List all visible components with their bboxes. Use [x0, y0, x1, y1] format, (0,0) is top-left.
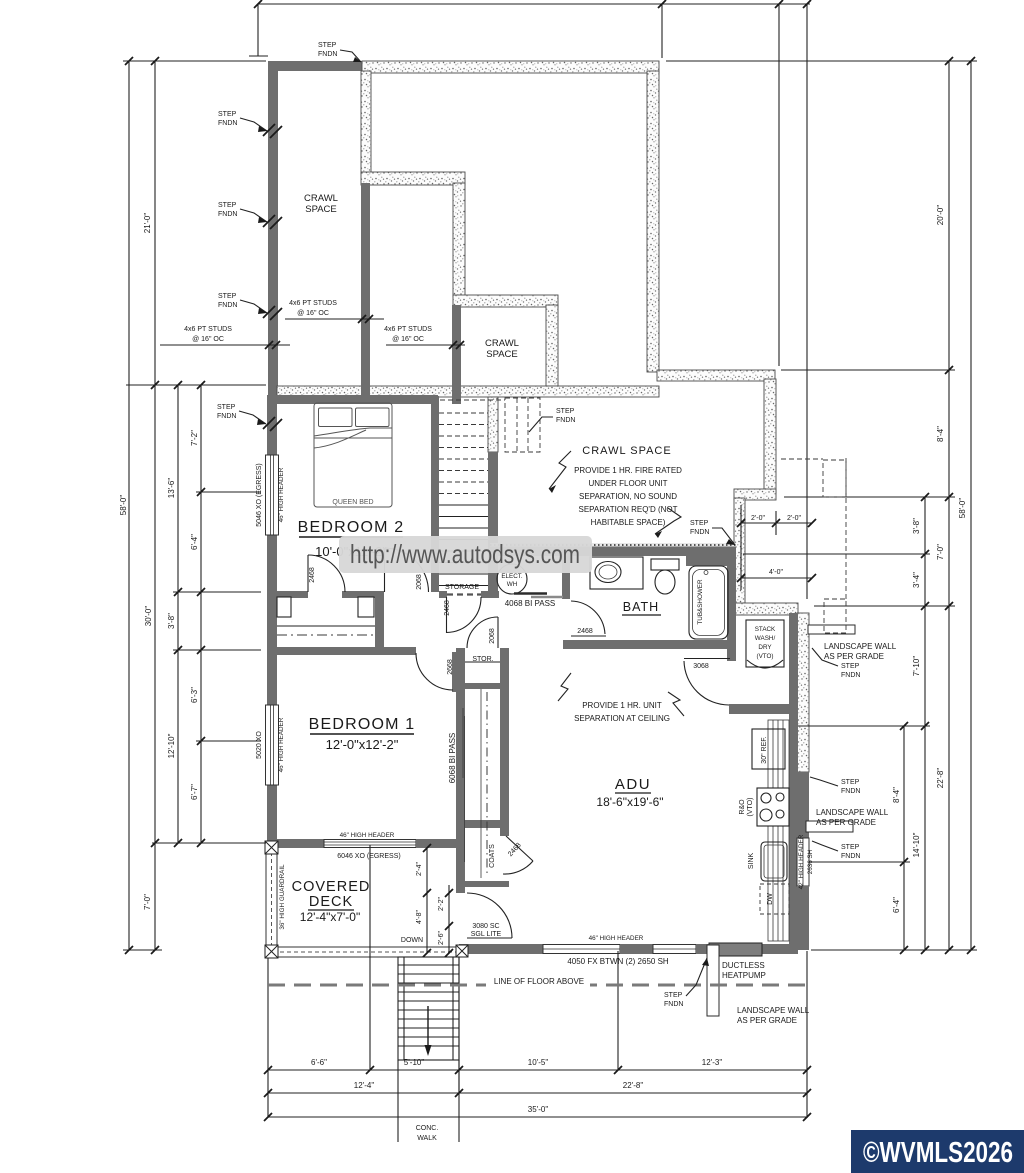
- svg-text:AS PER GRADE: AS PER GRADE: [816, 818, 876, 827]
- svg-text:2'-6": 2'-6": [438, 931, 445, 945]
- svg-text:18'-6"x19'-6": 18'-6"x19'-6": [596, 795, 663, 809]
- svg-text:SEPARATION AT CEILING: SEPARATION AT CEILING: [574, 714, 670, 723]
- svg-text:4068 BI PASS: 4068 BI PASS: [505, 599, 556, 608]
- svg-text:HEATPUMP: HEATPUMP: [722, 971, 766, 980]
- svg-text:2468: 2468: [577, 628, 593, 635]
- svg-text:FNDN: FNDN: [841, 853, 860, 860]
- svg-text:22'-8": 22'-8": [623, 1081, 644, 1090]
- svg-text:5046 XO (EGRESS): 5046 XO (EGRESS): [256, 463, 263, 526]
- svg-text:http://www.autodsys.com: http://www.autodsys.com: [350, 539, 580, 569]
- svg-text:LANDSCAPE WALL: LANDSCAPE WALL: [824, 642, 897, 651]
- svg-text:2'-2": 2'-2": [438, 897, 445, 911]
- svg-text:STEP: STEP: [841, 844, 860, 851]
- svg-text:DOWN: DOWN: [401, 937, 423, 944]
- svg-text:6'-3": 6'-3": [190, 687, 199, 703]
- svg-text:FNDN: FNDN: [218, 120, 237, 127]
- svg-text:AS PER GRADE: AS PER GRADE: [737, 1016, 797, 1025]
- svg-text:2068: 2068: [416, 574, 423, 590]
- svg-text:FNDN: FNDN: [690, 529, 709, 536]
- svg-text:CONC.: CONC.: [416, 1125, 439, 1132]
- svg-text:ELECT.: ELECT.: [501, 573, 523, 580]
- svg-text:DRY: DRY: [758, 644, 772, 651]
- svg-text:30" REF.: 30" REF.: [761, 736, 768, 763]
- svg-text:CRAWL: CRAWL: [304, 193, 338, 204]
- svg-text:STEP: STEP: [664, 992, 683, 999]
- svg-text:58'-0": 58'-0": [958, 498, 967, 519]
- svg-text:STEP: STEP: [218, 202, 237, 209]
- svg-text:6'-4": 6'-4": [190, 534, 199, 550]
- svg-text:STEP: STEP: [218, 111, 237, 118]
- svg-text:SEPARATION REQ'D (NOT: SEPARATION REQ'D (NOT: [578, 505, 677, 514]
- svg-text:FNDN: FNDN: [318, 51, 337, 58]
- svg-text:4'-0": 4'-0": [769, 569, 783, 576]
- svg-text:2468: 2468: [444, 600, 451, 616]
- svg-text:8'-4": 8'-4": [892, 787, 901, 803]
- svg-text:SGL LITE: SGL LITE: [471, 931, 502, 938]
- svg-text:14'-10": 14'-10": [912, 832, 921, 857]
- svg-text:7'-10": 7'-10": [912, 656, 921, 677]
- svg-text:STEP: STEP: [841, 779, 860, 786]
- svg-text:STACK: STACK: [755, 626, 776, 633]
- svg-text:LANDSCAPE WALL: LANDSCAPE WALL: [816, 808, 889, 817]
- svg-text:2'-4": 2'-4": [416, 862, 423, 876]
- svg-text:46" HIGH HEADER: 46" HIGH HEADER: [589, 935, 644, 942]
- svg-text:12'-0"x12'-2": 12'-0"x12'-2": [326, 737, 399, 752]
- svg-text:7'-0": 7'-0": [936, 544, 945, 560]
- svg-text:FNDN: FNDN: [218, 211, 237, 218]
- svg-text:©WVMLS2026: ©WVMLS2026: [863, 1137, 1013, 1169]
- svg-text:STEP: STEP: [318, 42, 337, 49]
- svg-text:6'-4": 6'-4": [892, 897, 901, 913]
- svg-text:DUCTLESS: DUCTLESS: [722, 961, 765, 970]
- svg-text:SPACE: SPACE: [486, 349, 518, 360]
- svg-text:12'-10": 12'-10": [167, 733, 176, 758]
- svg-text:3'-4": 3'-4": [912, 572, 921, 588]
- svg-text:6'-7": 6'-7": [190, 784, 199, 800]
- svg-text:BEDROOM 2: BEDROOM 2: [298, 519, 405, 536]
- svg-text:BEDROOM 1: BEDROOM 1: [309, 716, 416, 733]
- svg-text:R&O: R&O: [739, 799, 746, 815]
- svg-text:13'-6": 13'-6": [167, 478, 176, 499]
- svg-text:WASH/: WASH/: [755, 635, 776, 642]
- svg-text:WH: WH: [507, 581, 518, 588]
- svg-text:36" HIGH GUARDRAIL: 36" HIGH GUARDRAIL: [279, 864, 286, 930]
- svg-text:2636 SH: 2636 SH: [807, 849, 814, 874]
- svg-text:STEP: STEP: [841, 663, 860, 670]
- svg-text:SEPARATION, NO SOUND: SEPARATION, NO SOUND: [579, 492, 677, 501]
- svg-text:SINK: SINK: [748, 853, 755, 870]
- svg-text:STEP: STEP: [690, 520, 709, 527]
- svg-text:CRAWL SPACE: CRAWL SPACE: [582, 445, 671, 457]
- svg-text:21'-0": 21'-0": [143, 213, 152, 234]
- svg-text:2'-0": 2'-0": [787, 515, 801, 522]
- svg-text:@ 16" OC: @ 16" OC: [392, 336, 424, 343]
- svg-text:12'-4"x7'-0": 12'-4"x7'-0": [300, 910, 360, 924]
- svg-text:46" HIGH HEADER: 46" HIGH HEADER: [278, 717, 285, 772]
- svg-text:DECK: DECK: [309, 894, 353, 910]
- svg-text:46" HIGH HEADER: 46" HIGH HEADER: [278, 467, 285, 522]
- svg-text:AS PER GRADE: AS PER GRADE: [824, 652, 884, 661]
- svg-text:58'-0": 58'-0": [119, 495, 128, 516]
- svg-text:LINE OF FLOOR ABOVE: LINE OF FLOOR ABOVE: [494, 977, 584, 986]
- svg-text:ADU: ADU: [615, 776, 651, 793]
- svg-text:DW: DW: [767, 893, 774, 905]
- svg-text:2068: 2068: [489, 628, 496, 644]
- svg-text:FNDN: FNDN: [218, 302, 237, 309]
- svg-text:@ 16" OC: @ 16" OC: [297, 310, 329, 317]
- svg-text:3'-8": 3'-8": [912, 518, 921, 534]
- svg-text:5'-10": 5'-10": [404, 1058, 425, 1067]
- svg-text:6068 BI PASS: 6068 BI PASS: [448, 733, 457, 784]
- svg-text:(VTO): (VTO): [747, 798, 754, 817]
- svg-text:22'-8": 22'-8": [936, 768, 945, 789]
- svg-text:10'-5": 10'-5": [528, 1058, 549, 1067]
- svg-text:COVERED: COVERED: [292, 879, 371, 895]
- svg-text:4x6 PT STUDS: 4x6 PT STUDS: [289, 300, 337, 307]
- svg-text:12'-3": 12'-3": [702, 1058, 723, 1067]
- svg-text:3'-8": 3'-8": [167, 613, 176, 629]
- svg-text:FNDN: FNDN: [841, 672, 860, 679]
- svg-text:2468: 2468: [309, 567, 316, 583]
- svg-text:STEP: STEP: [556, 408, 575, 415]
- svg-text:COATS: COATS: [489, 844, 496, 868]
- svg-text:PROVIDE 1 HR. UNIT: PROVIDE 1 HR. UNIT: [582, 701, 662, 710]
- svg-text:46" HIGH HEADER: 46" HIGH HEADER: [340, 832, 395, 839]
- svg-text:FNDN: FNDN: [841, 788, 860, 795]
- svg-text:UNDER FLOOR UNIT: UNDER FLOOR UNIT: [588, 479, 667, 488]
- svg-text:3068: 3068: [693, 663, 709, 670]
- svg-text:2'-0": 2'-0": [751, 515, 765, 522]
- svg-text:35'-0": 35'-0": [528, 1105, 549, 1114]
- svg-text:5020 XO: 5020 XO: [256, 731, 263, 759]
- svg-text:6046 XO (EGRESS): 6046 XO (EGRESS): [337, 853, 400, 860]
- svg-text:LANDSCAPE WALL: LANDSCAPE WALL: [737, 1006, 810, 1015]
- svg-text:6'-6": 6'-6": [311, 1058, 327, 1067]
- svg-text:QUEEN BED: QUEEN BED: [332, 499, 373, 506]
- svg-text:(VTO): (VTO): [756, 653, 773, 660]
- svg-text:STOR.: STOR.: [472, 656, 493, 663]
- svg-text:8'-4": 8'-4": [936, 426, 945, 442]
- svg-text:TUB&SHOWER: TUB&SHOWER: [697, 579, 704, 625]
- svg-text:12'-4": 12'-4": [354, 1081, 375, 1090]
- svg-text:@ 16" OC: @ 16" OC: [192, 336, 224, 343]
- svg-text:4x6 PT STUDS: 4x6 PT STUDS: [184, 326, 232, 333]
- svg-text:4050 FX BTWN (2) 2650 SH: 4050 FX BTWN (2) 2650 SH: [567, 957, 669, 966]
- svg-text:HABITABLE SPACE): HABITABLE SPACE): [591, 518, 666, 527]
- svg-text:7'-0": 7'-0": [143, 894, 152, 910]
- svg-text:STORAGE: STORAGE: [445, 584, 479, 591]
- svg-text:FNDN: FNDN: [556, 417, 575, 424]
- svg-text:42" HIGH HEADER: 42" HIGH HEADER: [798, 834, 805, 889]
- svg-text:20'-0": 20'-0": [936, 205, 945, 226]
- svg-text:FNDN: FNDN: [664, 1001, 683, 1008]
- svg-text:WALK: WALK: [417, 1135, 437, 1142]
- svg-text:30'-0": 30'-0": [144, 606, 153, 627]
- svg-text:CRAWL: CRAWL: [485, 338, 519, 349]
- svg-text:STEP: STEP: [218, 293, 237, 300]
- svg-text:BATH: BATH: [623, 600, 659, 614]
- svg-text:FNDN: FNDN: [217, 413, 236, 420]
- svg-text:4'-8": 4'-8": [416, 910, 423, 924]
- svg-text:SPACE: SPACE: [305, 204, 337, 215]
- svg-text:3080 SC: 3080 SC: [472, 923, 499, 930]
- svg-text:STEP: STEP: [217, 404, 236, 411]
- svg-text:2668: 2668: [447, 659, 454, 675]
- svg-text:4x6 PT STUDS: 4x6 PT STUDS: [384, 326, 432, 333]
- svg-text:7'-2": 7'-2": [190, 430, 199, 446]
- svg-text:PROVIDE 1 HR. FIRE RATED: PROVIDE 1 HR. FIRE RATED: [574, 466, 682, 475]
